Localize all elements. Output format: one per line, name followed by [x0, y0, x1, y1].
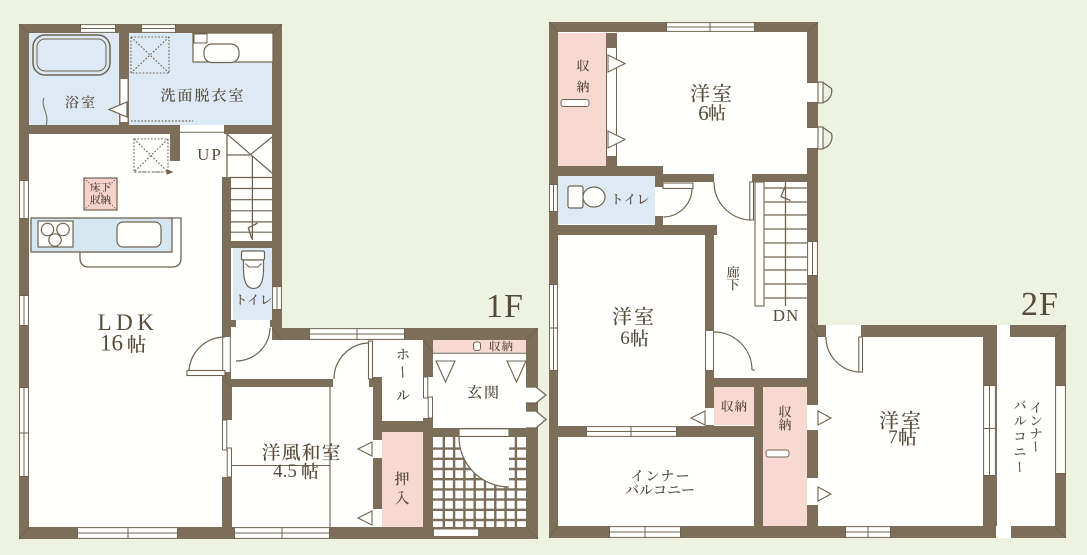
svg-text:6: 6 — [698, 101, 709, 125]
svg-text:4.5: 4.5 — [273, 461, 297, 482]
svg-text:6: 6 — [620, 328, 630, 349]
svg-text:16: 16 — [100, 331, 123, 356]
svg-text:UP: UP — [197, 145, 223, 164]
svg-text:7: 7 — [888, 427, 898, 448]
svg-text:DN: DN — [773, 306, 800, 325]
svg-text:1F: 1F — [486, 288, 524, 325]
svg-text:2F: 2F — [1021, 286, 1059, 323]
